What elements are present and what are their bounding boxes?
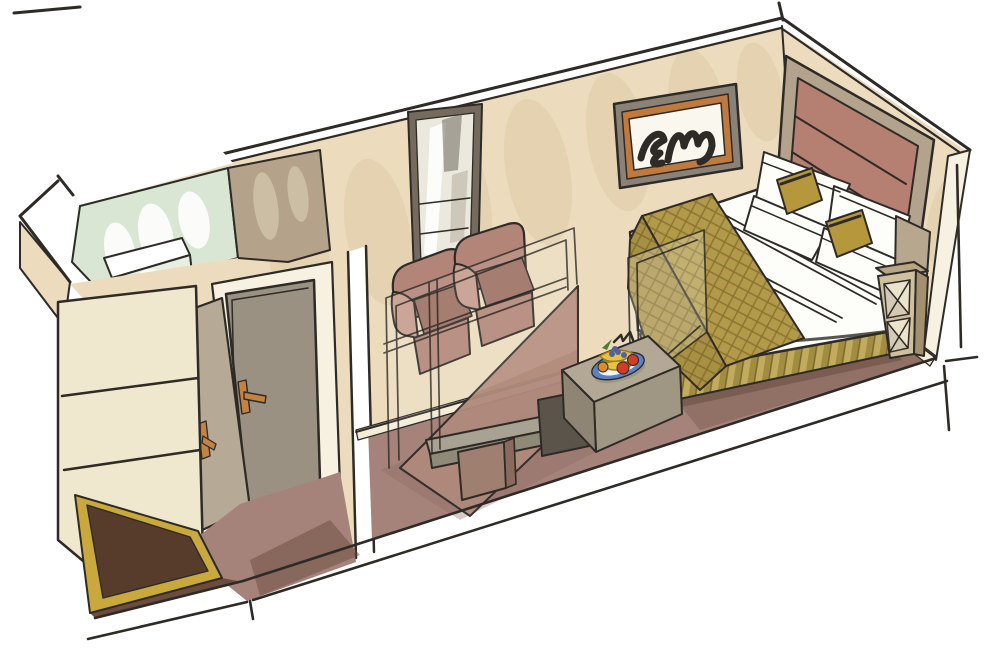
grape [612, 346, 618, 352]
grape [621, 352, 627, 358]
room-cutaway-illustration: Hand-drawn cutaway perspective illustrat… [0, 0, 1000, 664]
bathroom-inner-wall [228, 150, 330, 262]
pedestal-side [504, 438, 516, 488]
grape [609, 351, 615, 357]
framed-artwork [614, 84, 742, 188]
apple-2 [617, 362, 629, 374]
illustration-stage: Hand-drawn cutaway perspective illustrat… [0, 0, 1000, 664]
orange [598, 362, 608, 372]
apple [628, 355, 639, 366]
